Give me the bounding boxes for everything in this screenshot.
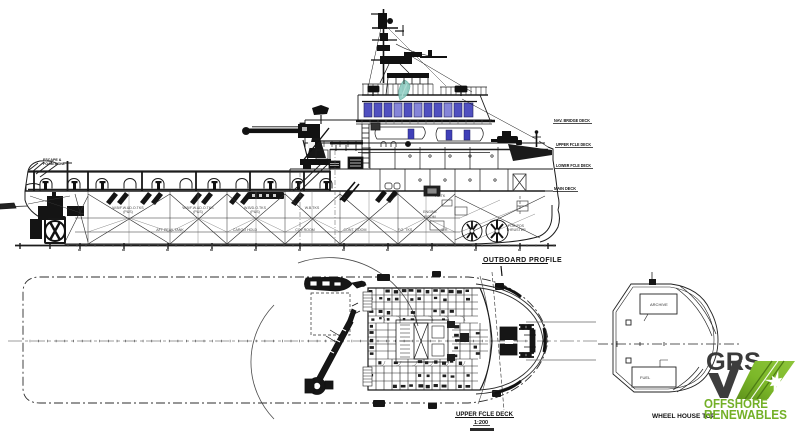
svg-text:LOWER FCLE DECK: LOWER FCLE DECK: [556, 163, 591, 169]
svg-text:CARGO HOLD: CARGO HOLD: [233, 228, 258, 232]
svg-text:UPPER FCLE DECK: UPPER FCLE DECK: [556, 142, 591, 148]
svg-text:ENGINE: ENGINE: [423, 210, 437, 214]
svg-text:AFT PEAK TANK: AFT PEAK TANK: [156, 228, 184, 232]
svg-text:ROOM: ROOM: [424, 215, 435, 219]
svg-text:RENEWABLES: RENEWABLES: [704, 407, 787, 422]
svg-text:(P&S): (P&S): [193, 210, 203, 214]
svg-text:FOAM MONI.: FOAM MONI.: [43, 162, 65, 166]
svg-text:W.B.TKS: W.B.TKS: [305, 206, 320, 210]
svg-text:FUEL: FUEL: [640, 375, 651, 380]
svg-text:UPPER FCLE DECK: UPPER FCLE DECK: [456, 411, 513, 418]
svg-text:THRUSTER: THRUSTER: [506, 228, 526, 232]
svg-text:CO2 ROOM: CO2 ROOM: [295, 228, 315, 232]
svg-text:CONT. ROOM: CONT. ROOM: [344, 228, 367, 232]
svg-text:(P&S): (P&S): [250, 210, 260, 214]
svg-text:MAIN DECK: MAIN DECK: [554, 186, 576, 192]
svg-text:ARCHIVE: ARCHIVE: [650, 302, 668, 307]
svg-text:NAV. BRIDGE DECK: NAV. BRIDGE DECK: [554, 118, 590, 124]
svg-text:(P&S): (P&S): [123, 210, 133, 214]
svg-text:1:200: 1:200: [474, 420, 488, 426]
svg-text:F.O. TKS: F.O. TKS: [398, 228, 413, 232]
svg-text:OUTBOARD PROFILE: OUTBOARD PROFILE: [483, 257, 562, 264]
